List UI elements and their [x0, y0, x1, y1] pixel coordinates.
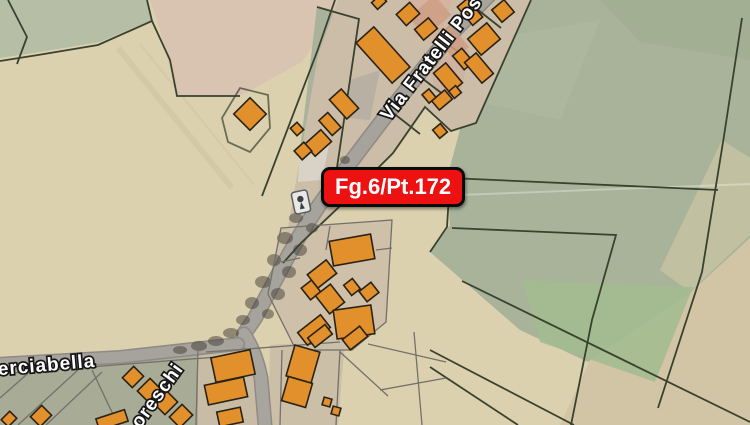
parcel-badge[interactable]: Fg.6/Pt.172 — [321, 167, 465, 207]
street-marker-icon[interactable] — [291, 190, 311, 215]
map-canvas[interactable]: Via Fratelli Pos erciabella oreschi — [0, 0, 750, 425]
parcel-badge-label: Fg.6/Pt.172 — [335, 174, 451, 199]
map-viewport[interactable]: Via Fratelli Pos erciabella oreschi Fg.6… — [0, 0, 750, 425]
